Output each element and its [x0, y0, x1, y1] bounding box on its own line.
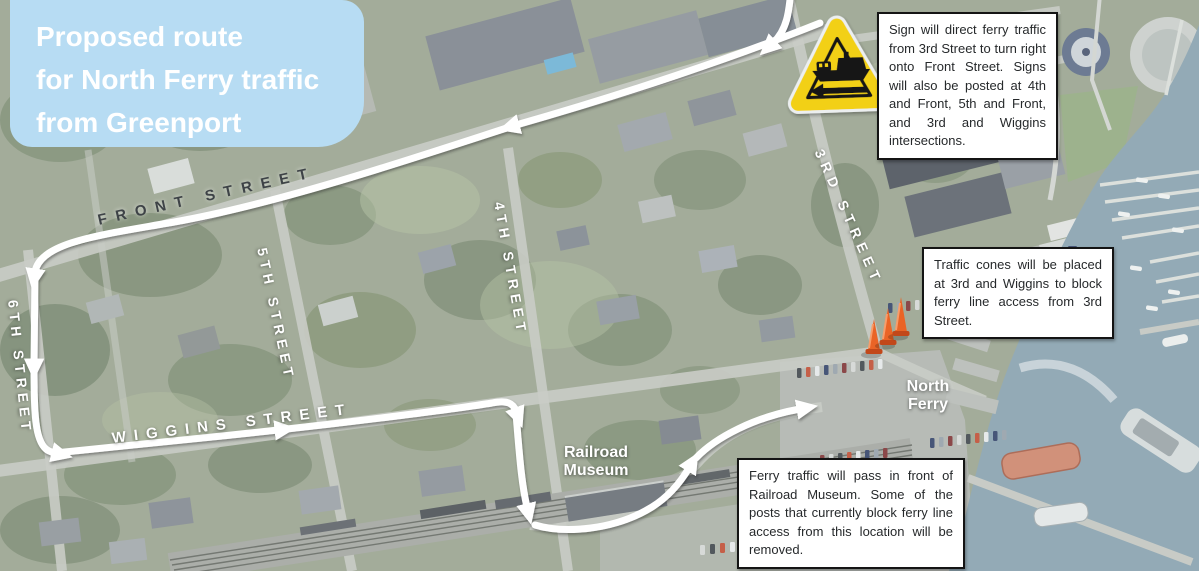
map-title-line: Proposed route [36, 15, 354, 58]
north-ferry-label-line: North [897, 378, 959, 396]
map-title-line: from Greenport [36, 101, 354, 144]
railroad-museum-label-line: Railroad [552, 444, 640, 462]
map-title-line: for North Ferry traffic [36, 58, 354, 101]
railroad-museum-label-line: Museum [552, 462, 640, 480]
map-title: Proposed route for North Ferry traffic f… [10, 0, 364, 147]
museum-callout: Ferry traffic will pass in front of Rail… [737, 458, 965, 569]
map-canvas: Proposed route for North Ferry traffic f… [0, 0, 1199, 571]
sign-callout: Sign will direct ferry traffic from 3rd … [877, 12, 1058, 160]
cones-callout: Traffic cones will be placed at 3rd and … [922, 247, 1114, 339]
north-ferry-label-line: Ferry [897, 396, 959, 414]
north-ferry-label: North Ferry [897, 378, 959, 414]
railroad-museum-label: Railroad Museum [552, 444, 640, 480]
